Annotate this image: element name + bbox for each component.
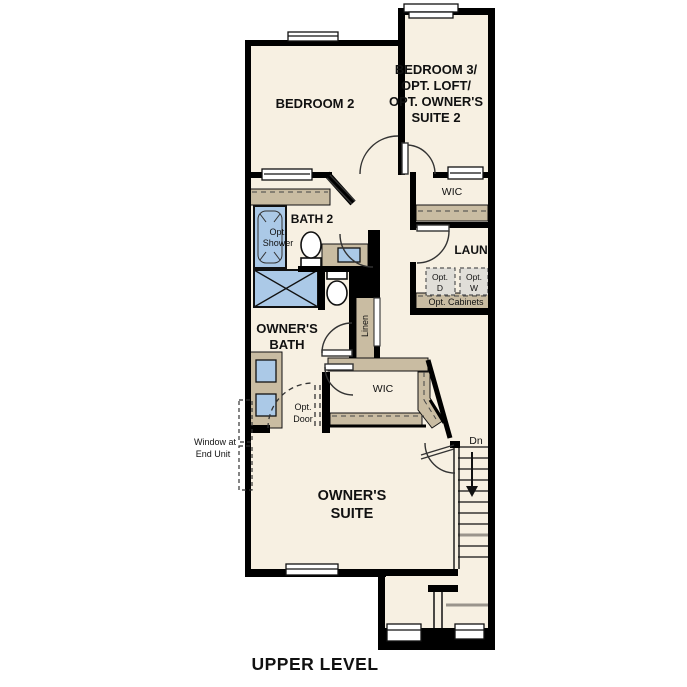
end-unit-note-line2: End Unit [196,449,231,459]
owners-suite-label-line1: OWNER'S [318,488,387,504]
wic-middle-label: WIC [373,383,394,395]
bath2-label: BATH 2 [291,212,334,226]
end-unit-note-line1: Window at [194,437,237,447]
owners-bath-label-line1: OWNER'S [256,321,318,336]
laundry-label: LAUN [454,243,487,257]
owners-sink-2 [256,394,276,416]
opt-door-label-line1: Opt. [294,402,311,412]
owners-sink-1 [256,360,276,382]
linen-door-leaf [374,298,380,346]
owners-bath-label-line2: BATH [269,337,304,352]
opt-cabinets-label: Opt. Cabinets [428,297,484,307]
opt-door-label-line2: Door [293,414,313,424]
wic-door-leaf [325,364,353,370]
plan-title: UPPER LEVEL [251,654,378,674]
landing-window-1 [387,624,421,641]
opt-washer-label-line1: Opt. [466,272,482,282]
bath2-toilet-tank [301,258,321,267]
opt-dryer-label-line1: Opt. [432,272,448,282]
opt-shower-label-line1: Opt. [269,227,286,237]
stairs-down-label: Dn [469,435,483,447]
bedroom3-label-line3: OPT. OWNER'S [389,94,483,109]
landing-window-2 [455,624,484,639]
floor-plan-page: BEDROOM 2 BEDROOM 3/ OPT. LOFT/ OPT. OWN… [0,0,687,687]
bedroom3-door-leaf [402,143,408,174]
opt-dryer-label-line2: D [437,283,443,293]
wic-upper-shelf [416,205,488,221]
bedroom2-closet-shelf [250,189,330,205]
wic-middle-shelf [330,413,422,425]
bedroom3-label-line2: OPT. LOFT/ [401,78,471,93]
bedroom3-window-inner [409,12,453,18]
bedroom3-label-line1: BEDROOM 3/ [395,62,478,77]
linen-label: Linen [360,315,370,337]
owners-bath-door-leaf [322,350,352,356]
opt-washer-label-line2: W [470,283,478,293]
bath2-sink [338,248,360,262]
floor-plan-drawing: BEDROOM 2 BEDROOM 3/ OPT. LOFT/ OPT. OWN… [0,0,687,687]
bedroom3-window [404,4,458,12]
owners-toilet-bowl [327,281,347,305]
bath2-toilet-bowl [301,232,321,258]
laundry-door-leaf [417,225,449,231]
bedroom2-label: BEDROOM 2 [276,96,355,111]
owners-suite-label-line2: SUITE [331,506,374,522]
opt-shower-label-line2: Shower [263,238,294,248]
bedroom3-label-line4: SUITE 2 [411,110,460,125]
wic-upper-label: WIC [442,186,463,198]
